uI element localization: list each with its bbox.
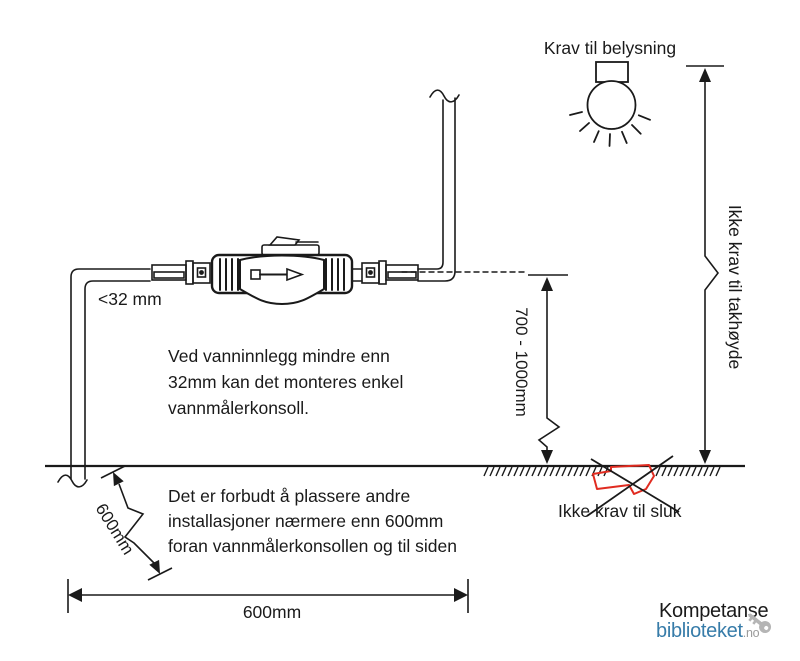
- note-forbidden-zone: Det er forbudt å plassere andre installa…: [168, 486, 457, 556]
- pipe-break-icon: [430, 90, 459, 102]
- riser-pipe: [418, 90, 459, 281]
- note-line: Ved vanninnlegg mindre enn: [168, 346, 390, 366]
- ceiling-dimension: [686, 66, 724, 464]
- note-line: vannmålerkonsoll.: [168, 398, 309, 418]
- note-line: 32mm kan det monteres enkel: [168, 372, 403, 392]
- note-line: Det er forbudt å plassere andre: [168, 486, 410, 506]
- logo-tld: .no: [743, 626, 760, 640]
- ceiling-label: Ikke krav til takhøyde: [725, 205, 745, 369]
- svg-text:biblioteket.no: biblioteket.no: [656, 620, 760, 642]
- floor-hatching: [484, 467, 608, 476]
- note-small-pipe: Ved vanninnlegg mindre enn 32mm kan det …: [168, 346, 403, 418]
- valve-handle: [262, 237, 319, 255]
- drain-label: Ikke krav til sluk: [558, 501, 682, 521]
- lamp-icon: [570, 62, 650, 146]
- left-fitting: [152, 261, 210, 284]
- floor-hatching: [656, 467, 720, 476]
- note-line: foran vannmålerkonsollen og til siden: [168, 536, 457, 556]
- floor-line: [45, 466, 745, 476]
- right-fitting: [352, 261, 418, 284]
- logo: Kompetanse biblioteket.no: [656, 600, 773, 642]
- pipe-size-label: <32 mm: [98, 289, 162, 309]
- width-dimension-label: 600mm: [243, 602, 301, 622]
- height-dimension-label: 700 - 1000mm: [512, 307, 531, 417]
- height-dimension: [528, 275, 568, 464]
- pipe-break-icon: [58, 475, 87, 487]
- meter-body: [212, 237, 352, 304]
- logo-library: biblioteket: [656, 620, 744, 642]
- installation-diagram: Krav til belysning Ikke krav til takhøyd…: [0, 0, 800, 661]
- note-line: installasjoner nærmere enn 600mm: [168, 511, 443, 531]
- lighting-label: Krav til belysning: [544, 38, 676, 58]
